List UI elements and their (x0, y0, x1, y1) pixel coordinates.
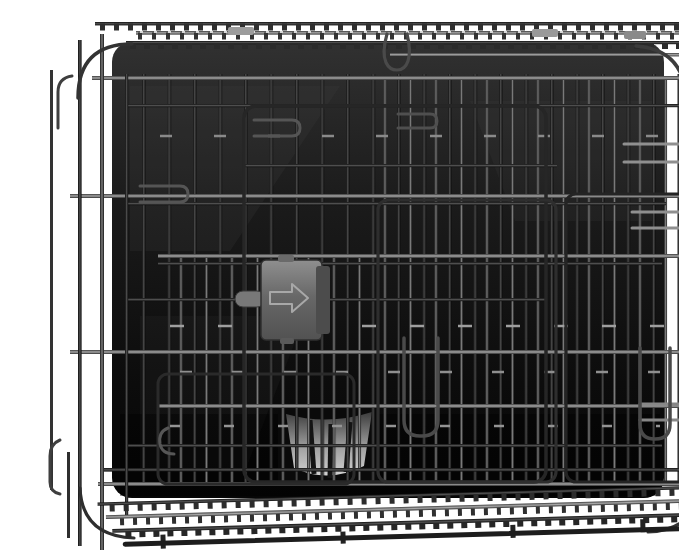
latch-flap (316, 266, 330, 334)
wire-grid-overlap-lower (158, 254, 679, 486)
product-photo: Folded black metal wire dog crate with p… (40, 16, 679, 550)
rail-clip (624, 31, 646, 39)
latch-notch-bottom (280, 338, 294, 344)
latch-notch-top (278, 255, 294, 262)
crate-illustration (40, 16, 679, 550)
rail-clip (228, 27, 254, 35)
rail-clip (532, 29, 558, 37)
